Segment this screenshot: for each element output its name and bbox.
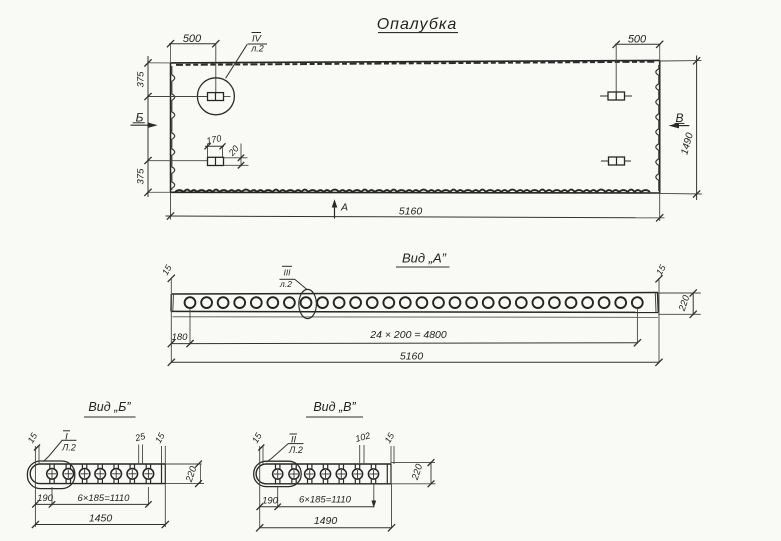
svg-text:6×185=1110: 6×185=1110	[299, 495, 352, 506]
svg-text:24 × 200 = 4800: 24 × 200 = 4800	[369, 329, 447, 341]
svg-text:Л.2: Л.2	[61, 442, 76, 452]
svg-text:1490: 1490	[679, 131, 695, 156]
svg-text:375: 375	[136, 71, 147, 88]
svg-text:л.2: л.2	[279, 279, 292, 289]
svg-text:15: 15	[153, 430, 167, 445]
svg-text:25: 25	[133, 431, 147, 444]
svg-text:6×185=1110: 6×185=1110	[78, 493, 131, 504]
svg-text:15: 15	[160, 262, 174, 277]
svg-text:15: 15	[26, 430, 40, 445]
svg-text:190: 190	[262, 495, 279, 506]
svg-text:20: 20	[226, 144, 241, 159]
svg-text:102: 102	[354, 430, 371, 444]
svg-text:Вид „А”: Вид „А”	[402, 251, 447, 266]
svg-text:А: А	[340, 202, 348, 214]
svg-text:1450: 1450	[89, 512, 113, 524]
svg-text:III: III	[283, 267, 291, 277]
svg-text:5160: 5160	[400, 350, 424, 362]
svg-text:1490: 1490	[314, 515, 338, 527]
svg-text:220: 220	[184, 464, 200, 484]
svg-text:Вид „Б”: Вид „Б”	[88, 400, 131, 414]
svg-text:500: 500	[183, 33, 202, 45]
svg-text:170: 170	[205, 133, 222, 146]
svg-text:220: 220	[410, 462, 426, 482]
svg-text:Вид „В”: Вид „В”	[313, 400, 356, 414]
svg-text:15: 15	[383, 430, 397, 445]
svg-text:Опалубка: Опалубка	[377, 16, 458, 33]
svg-text:15: 15	[250, 430, 264, 445]
svg-text:180: 180	[172, 332, 189, 343]
svg-text:л.2: л.2	[250, 44, 264, 54]
svg-text:190: 190	[37, 493, 54, 504]
svg-text:375: 375	[136, 168, 147, 185]
svg-text:15: 15	[654, 262, 668, 277]
svg-text:500: 500	[628, 34, 647, 46]
svg-text:5160: 5160	[399, 206, 423, 218]
svg-text:Л.2: Л.2	[288, 445, 303, 455]
